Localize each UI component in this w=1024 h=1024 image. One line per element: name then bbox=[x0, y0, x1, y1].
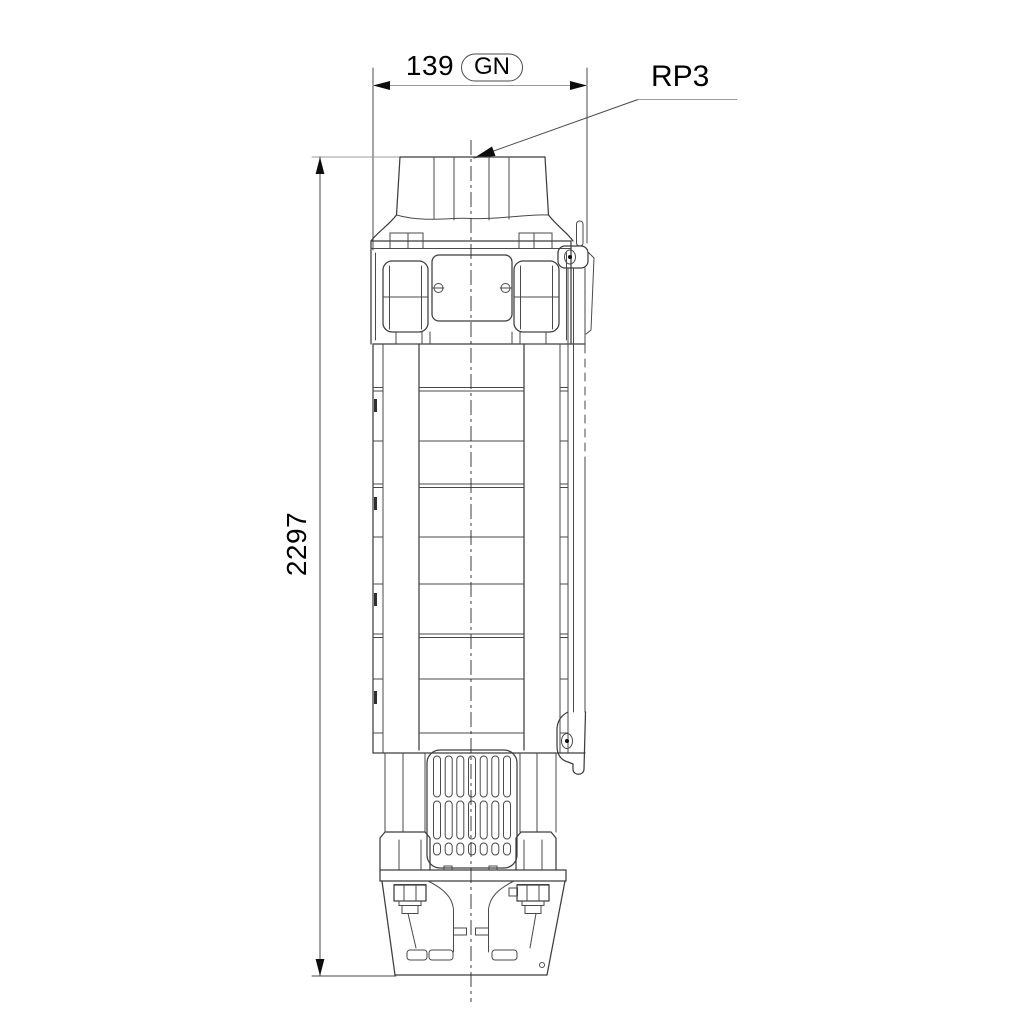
leader-arrow-icon bbox=[474, 147, 496, 159]
cable-clamp-right bbox=[514, 233, 559, 344]
dim-arrow-down-icon bbox=[316, 959, 325, 976]
stud-nut-left bbox=[394, 885, 426, 949]
thread-note-label: GN bbox=[474, 53, 510, 80]
drawing-page: 139 GN 2297 RP3 bbox=[0, 0, 1024, 1024]
discharge-connection bbox=[371, 157, 573, 249]
cable-clamp-left bbox=[383, 233, 428, 344]
dim-arrow-up-icon bbox=[316, 157, 325, 174]
connection-label: RP3 bbox=[651, 60, 709, 93]
motor-body bbox=[382, 881, 565, 975]
width-value-label: 139 bbox=[406, 50, 454, 81]
cable-guard bbox=[557, 221, 594, 774]
connection-leader: RP3 bbox=[474, 60, 737, 158]
suction-strainer bbox=[427, 750, 517, 868]
dim-arrow-right-icon bbox=[570, 81, 587, 90]
width-dimension: 139 GN bbox=[373, 50, 587, 250]
chamber-stack bbox=[373, 344, 568, 753]
height-value-label: 2297 bbox=[281, 512, 312, 576]
stud-nut-right bbox=[509, 885, 549, 949]
dim-arrow-left-icon bbox=[373, 81, 390, 90]
drain-hole-icon bbox=[540, 963, 545, 968]
suction-interconnector bbox=[373, 753, 585, 870]
name-plate bbox=[432, 255, 512, 321]
pump-technical-drawing: 139 GN 2297 RP3 bbox=[0, 0, 1024, 1024]
